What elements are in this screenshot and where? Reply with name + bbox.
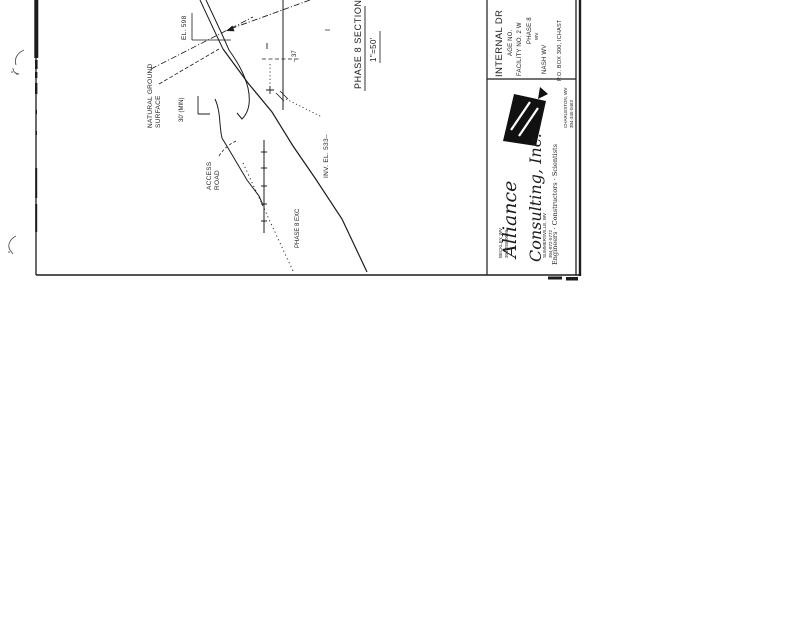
existing-ground-dotted-line: [243, 163, 293, 271]
access-road-label-line2: ROAD: [214, 170, 221, 190]
crest-face-line-a: [200, 0, 223, 49]
title-block: INTERNAL DR AGE NO. FACILITY NO. 2 W PHA…: [487, 0, 576, 275]
scan-blot-bottom-right-2: [566, 277, 578, 281]
section-scale: 1"=50': [369, 37, 378, 62]
natural-ground-label-line2: SURFACE: [155, 95, 162, 128]
project-address-edge: P.O. BOX 300, ICHAST: [557, 19, 563, 81]
section-title: PHASE 8 SECTION: [353, 0, 363, 89]
border-left-blot-5: [35, 204, 37, 232]
border-left-speck-2: [35, 131, 37, 135]
office-address-3: CHARLESTON, WV 304-345-0463: [563, 88, 574, 128]
border-left-heavy-segment: [34, 0, 38, 58]
office-1-city: BECKLEY, WV: [498, 228, 503, 258]
logo-flag-tip: [538, 87, 548, 99]
margin-marks: [8, 50, 24, 254]
crossing-dashdot-line: [151, 17, 253, 69]
natural-ground-leader: [159, 49, 219, 84]
drawing-sheet: EL. 598 NATURAL GROUND SURFACE 30' (MIN)…: [0, 0, 800, 618]
margin-squiggle-top: [13, 50, 24, 74]
offset-dim-label: – 37: [292, 50, 298, 62]
access-road-label-line1: ACCESS: [206, 161, 213, 190]
office-1-phone: 304-255-0686: [504, 229, 509, 258]
office-3-city: CHARLESTON, WV: [563, 88, 568, 128]
crest-elevation-label: EL. 598: [181, 15, 188, 40]
scan-blot-bottom-right-1: [548, 277, 562, 280]
margin-dot-2: [16, 73, 18, 75]
invert-leader: [286, 99, 322, 117]
leader-arrowhead: [226, 26, 235, 32]
project-title-line5: WV: [534, 33, 539, 40]
project-box: INTERNAL DR AGE NO. FACILITY NO. 2 W PHA…: [494, 10, 563, 81]
section-title-group: PHASE 8 SECTION 1"=50': [353, 0, 380, 91]
company-box: Alliance Consulting, Inc. Engineers · Co…: [498, 87, 574, 265]
bench-angle-symbol: [198, 96, 210, 114]
project-title-line3: FACILITY NO. 2 W: [517, 22, 523, 76]
office-2-city: SUMMERSVILLE, WV: [542, 213, 547, 258]
access-road-leader: [219, 141, 236, 156]
section-labels: EL. 598 NATURAL GROUND SURFACE 30' (MIN)…: [147, 15, 330, 248]
bench-width-label: 30' (MIN): [179, 98, 185, 122]
office-address-1: BECKLEY, WV 304-255-0686: [498, 228, 509, 258]
natural-ground-label-line1: NATURAL GROUND: [147, 63, 154, 128]
invert-elevation-label: INV. EL. 533–: [323, 134, 330, 178]
border-left-blot-4: [35, 168, 37, 198]
phase-excavation-label: PHASE 8 EXC: [295, 208, 301, 248]
border-left-speck-1: [35, 110, 37, 114]
project-title-line1: INTERNAL DR: [494, 10, 505, 77]
project-title-line2: AGE NO.: [508, 29, 514, 56]
margin-squiggle-bottom: [9, 236, 16, 254]
project-title-line4: PHASE 8: [527, 17, 533, 44]
margin-dot-1: [11, 71, 13, 73]
border-left-blot-1: [35, 60, 38, 69]
office-3-phone: 304-345-0463: [569, 99, 574, 128]
crest-face-line-b-hook: [206, 0, 249, 119]
plus-marker: [266, 86, 274, 94]
border-left-blot-3: [35, 83, 37, 94]
margin-dot-3: [8, 251, 10, 253]
crest-elevation-leader: [192, 13, 231, 40]
scanned-drawing-page: EL. 598 NATURAL GROUND SURFACE 30' (MIN)…: [0, 0, 800, 618]
office-2-phone: 304-872-5772: [548, 229, 553, 258]
leader-dashdot-arrow-line: [230, 0, 310, 29]
border-left-blot-2: [35, 72, 37, 78]
project-title-line6: NASH WV: [542, 45, 548, 74]
